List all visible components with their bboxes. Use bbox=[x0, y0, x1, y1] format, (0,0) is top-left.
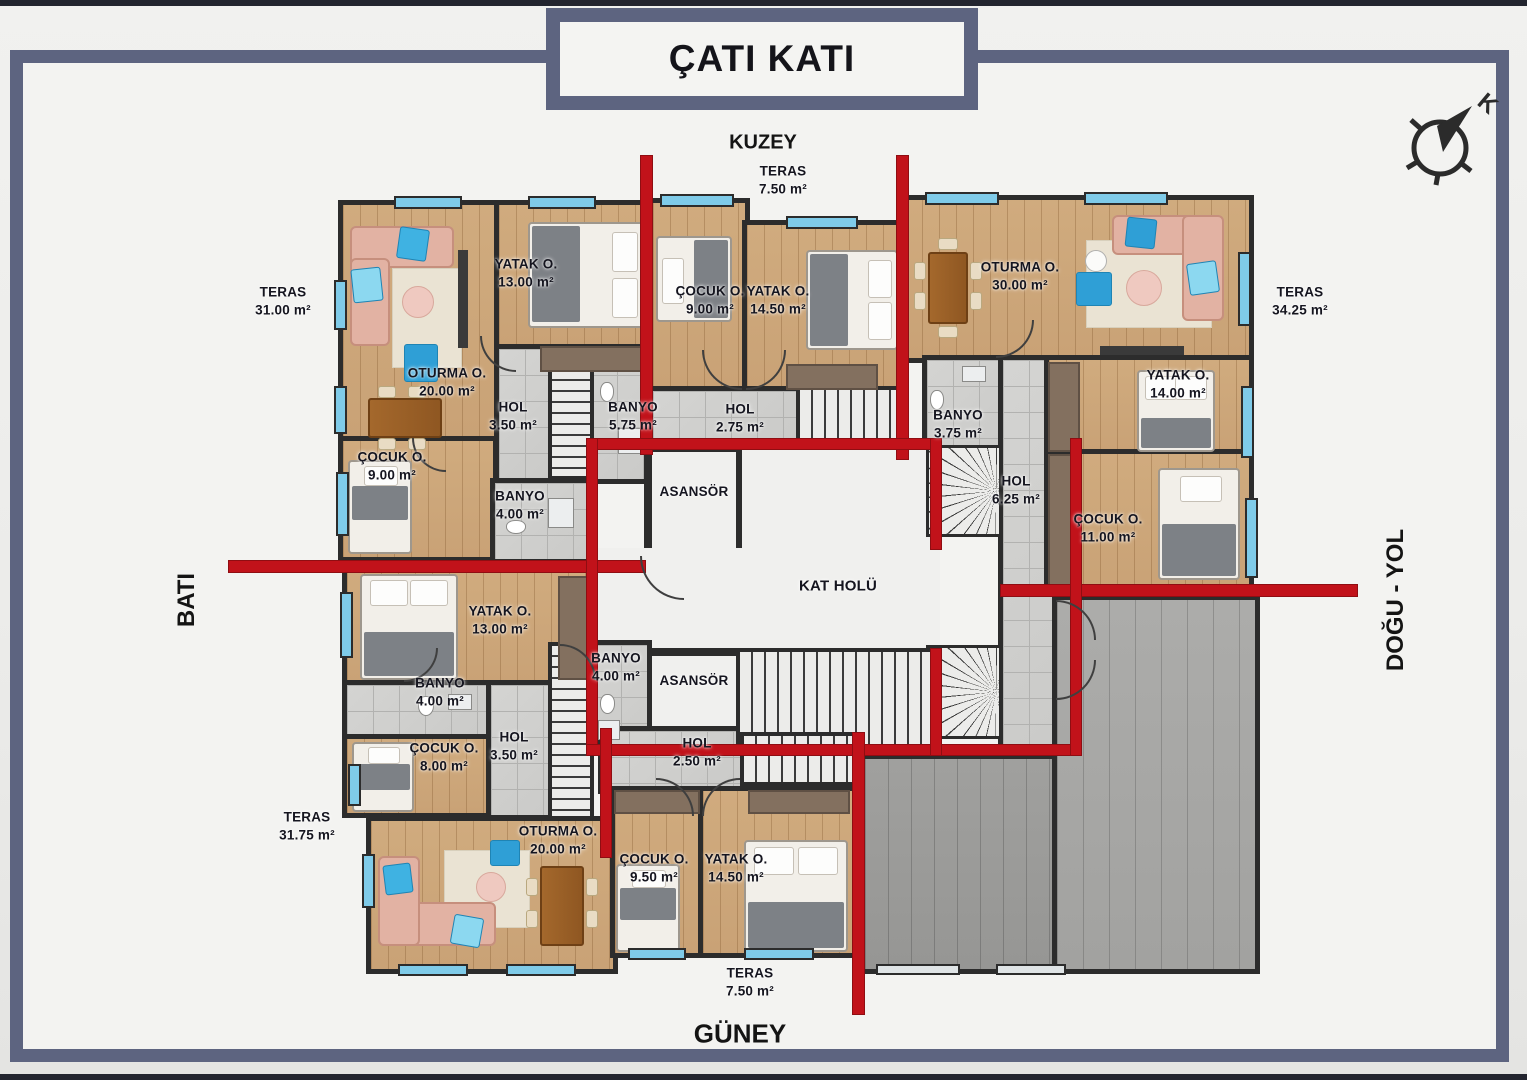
label-hol-w: HOL3.50 m² bbox=[490, 728, 538, 763]
label-yatak-s: YATAK O.14.50 m² bbox=[705, 850, 768, 885]
red-wall-core-right-upper bbox=[930, 438, 942, 550]
window-icon bbox=[744, 948, 814, 960]
chair-icon bbox=[378, 386, 396, 398]
label-banyo-ne: BANYO3.75 m² bbox=[933, 406, 983, 441]
chair-icon bbox=[938, 326, 958, 338]
side-table-icon bbox=[1085, 250, 1107, 272]
label-teras-n: TERAS7.50 m² bbox=[759, 162, 807, 197]
window-icon bbox=[398, 964, 468, 976]
window-icon bbox=[1241, 386, 1254, 458]
svg-text:K: K bbox=[1472, 88, 1500, 120]
window-icon bbox=[348, 764, 361, 806]
chair-icon bbox=[526, 910, 538, 928]
cushion-icon bbox=[350, 267, 383, 304]
label-teras-s: TERAS7.50 m² bbox=[726, 964, 774, 999]
cushion-icon bbox=[1125, 217, 1158, 250]
red-wall-south-left bbox=[600, 728, 612, 858]
chair-icon bbox=[526, 878, 538, 896]
compass-icon: K bbox=[1396, 84, 1500, 200]
wardrobe-icon bbox=[786, 364, 878, 390]
title-box: ÇATI KATI bbox=[546, 8, 978, 110]
armchair-icon bbox=[490, 840, 520, 866]
label-hol-nw: HOL3.50 m² bbox=[489, 398, 537, 433]
coffee-table-icon bbox=[1126, 270, 1162, 306]
red-wall-core-left bbox=[586, 438, 598, 756]
shaft-room bbox=[736, 444, 938, 556]
label-asansor-lower: ASANSÖR bbox=[660, 672, 729, 690]
label-oturma-ne: OTURMA O.30.00 m² bbox=[981, 258, 1060, 293]
label-hol-s: HOL2.50 m² bbox=[673, 734, 721, 769]
label-banyo-core: BANYO4.00 m² bbox=[591, 649, 641, 684]
cushion-icon bbox=[396, 226, 430, 262]
chair-icon bbox=[970, 292, 982, 310]
cushion-icon bbox=[1186, 260, 1220, 296]
window-icon bbox=[506, 964, 576, 976]
stairs-s bbox=[740, 732, 856, 786]
window-icon bbox=[1084, 192, 1168, 205]
wardrobe-icon bbox=[540, 346, 644, 372]
window-icon bbox=[394, 196, 462, 209]
cushion-icon bbox=[382, 862, 413, 895]
direction-east: DOĞU - YOL bbox=[1382, 529, 1410, 671]
red-wall-west-divider bbox=[228, 560, 646, 573]
bottom-edge-bar bbox=[0, 1074, 1527, 1080]
red-wall-core-right-lower bbox=[930, 648, 942, 756]
dining-table-icon bbox=[540, 866, 584, 946]
window-icon bbox=[786, 216, 858, 229]
label-asansor-upper: ASANSÖR bbox=[660, 483, 729, 501]
wardrobe-icon bbox=[748, 790, 850, 814]
room-open-se2 bbox=[1052, 595, 1260, 974]
chair-icon bbox=[914, 262, 926, 280]
room-open-se1 bbox=[860, 754, 1060, 974]
red-wall-east-divider bbox=[1000, 584, 1358, 597]
window-icon bbox=[1238, 252, 1251, 326]
chair-icon bbox=[938, 238, 958, 250]
label-hol-ne: HOL6.25 m² bbox=[992, 472, 1040, 507]
sink-icon bbox=[962, 366, 986, 382]
window-icon bbox=[528, 196, 596, 209]
red-wall-core-top bbox=[586, 438, 940, 450]
red-wall-n2 bbox=[896, 155, 909, 460]
red-wall-south-divider bbox=[852, 732, 865, 1015]
window-icon bbox=[876, 964, 960, 975]
window-icon bbox=[925, 192, 999, 205]
window-icon bbox=[628, 948, 686, 960]
window-icon bbox=[996, 964, 1066, 975]
label-teras-w: TERAS31.00 m² bbox=[255, 283, 311, 318]
label-banyo-nw: BANYO5.75 m² bbox=[608, 398, 658, 433]
label-yatak-ne: YATAK O.14.00 m² bbox=[1147, 366, 1210, 401]
coffee-table-icon bbox=[402, 286, 434, 318]
coffee-table-icon bbox=[476, 872, 506, 902]
cushion-icon bbox=[450, 914, 485, 949]
window-icon bbox=[340, 592, 353, 658]
red-wall-core-bottom bbox=[586, 744, 1082, 756]
red-wall-corridor-right bbox=[1070, 438, 1082, 756]
toilet-icon bbox=[600, 694, 615, 714]
label-kat-holu: KAT HOLÜ bbox=[799, 576, 877, 596]
label-teras-e: TERAS34.25 m² bbox=[1272, 283, 1328, 318]
label-yatak-nw: YATAK O.13.00 m² bbox=[495, 255, 558, 290]
label-yatak-nc: YATAK O.14.50 m² bbox=[747, 282, 810, 317]
label-yatak-w: YATAK O.13.00 m² bbox=[469, 602, 532, 637]
tv-unit-icon bbox=[458, 250, 468, 348]
chair-icon bbox=[586, 910, 598, 928]
label-cocuk-nw: ÇOCUK O.9.00 m² bbox=[357, 448, 426, 483]
label-oturma-nw: OTURMA O.20.00 m² bbox=[408, 364, 487, 399]
bed-icon bbox=[1158, 468, 1240, 580]
bed-icon bbox=[806, 250, 898, 350]
window-icon bbox=[336, 472, 349, 536]
window-icon bbox=[334, 280, 347, 330]
window-icon bbox=[660, 194, 734, 207]
window-icon bbox=[334, 386, 347, 434]
label-cocuk-nc: ÇOCUK O.9.00 m² bbox=[675, 282, 744, 317]
chair-icon bbox=[914, 292, 926, 310]
shower-icon bbox=[548, 498, 574, 528]
stairs-nc bbox=[796, 386, 908, 446]
dining-table-icon bbox=[368, 398, 442, 438]
page-title: ÇATI KATI bbox=[669, 38, 855, 80]
direction-north: KUZEY bbox=[729, 132, 797, 155]
top-edge-bar bbox=[0, 0, 1527, 6]
window-icon bbox=[362, 854, 375, 908]
label-teras-sw: TERAS31.75 m² bbox=[279, 808, 335, 843]
label-banyo-w: BANYO4.00 m² bbox=[415, 674, 465, 709]
label-hol-nc: HOL2.75 m² bbox=[716, 400, 764, 435]
label-cocuk-s: ÇOCUK O.9.50 m² bbox=[619, 850, 688, 885]
floor-plan-page: TERAS31.00 m² TERAS7.50 m² TERAS34.25 m²… bbox=[0, 0, 1527, 1080]
dining-table-icon bbox=[928, 252, 968, 324]
chair-icon bbox=[586, 878, 598, 896]
label-cocuk-w: ÇOCUK O.8.00 m² bbox=[409, 739, 478, 774]
label-banyo2-nw: BANYO4.00 m² bbox=[495, 487, 545, 522]
bed-icon bbox=[352, 742, 414, 812]
direction-west: BATI bbox=[173, 573, 201, 627]
label-cocuk-ne: ÇOCUK O.11.00 m² bbox=[1073, 510, 1142, 545]
tv-unit-icon bbox=[1100, 346, 1184, 355]
armchair-icon bbox=[1076, 272, 1112, 306]
window-icon bbox=[1245, 498, 1258, 578]
direction-south: GÜNEY bbox=[694, 1019, 786, 1050]
label-oturma-sw: OTURMA O.20.00 m² bbox=[519, 822, 598, 857]
